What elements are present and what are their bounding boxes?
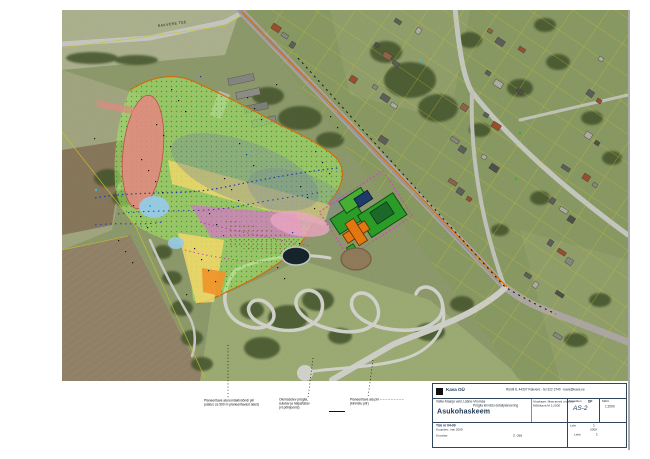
drawing-number: AS-2 xyxy=(573,404,587,412)
project-municipality: Väike-Maarja vald, Lääne-Virumaa xyxy=(436,400,485,404)
plan-sheet: { "map": { "road_label": "RAKVERE TEE", … xyxy=(0,0,650,459)
annotation-note: Olemasolev prügila, suletav ja haljastat… xyxy=(279,398,310,410)
author-line: Koostas: xyxy=(436,434,448,438)
company-logo-icon xyxy=(436,388,443,395)
sheet-value: 1 xyxy=(593,424,595,428)
stage-value: DP xyxy=(588,400,592,404)
scale-value: 1:2000 xyxy=(605,405,615,409)
annotation-note: Planeeritava ala piir – – – – – – – – – … xyxy=(350,398,404,406)
sheets-label: Lehti xyxy=(574,433,581,437)
boundary-line-sample xyxy=(329,411,345,412)
drawing-title: Asukohaskeem xyxy=(437,407,490,415)
company-contact: Rüütli 8, 44307 Rakvere · tel 322 3740 ·… xyxy=(506,388,585,392)
company-name: Kava OÜ xyxy=(446,387,465,392)
work-number: Töö nr 04-09 xyxy=(436,424,456,428)
year-note: 2009 xyxy=(590,428,597,432)
stage-label: Staadium xyxy=(569,400,582,404)
part-label: 2. osa xyxy=(513,434,522,438)
annotation-note: Planeeritava ala kontaktvööndi piir (ula… xyxy=(204,399,259,407)
sheets-value: 1 xyxy=(596,433,598,437)
title-block: Kava OÜ Rüütli 8, 44307 Rakvere · tel 32… xyxy=(432,383,627,448)
scale-label: Mõõt xyxy=(602,400,609,404)
sheet-label: Leht xyxy=(570,424,576,428)
date-line: Kuupäev: mai 2009 xyxy=(436,428,463,432)
basemap-note: Aluskaart: Maa-ameti ortofoto xyxy=(533,400,574,404)
scale-note: Mõõtkava M 1:2000 xyxy=(533,404,560,408)
